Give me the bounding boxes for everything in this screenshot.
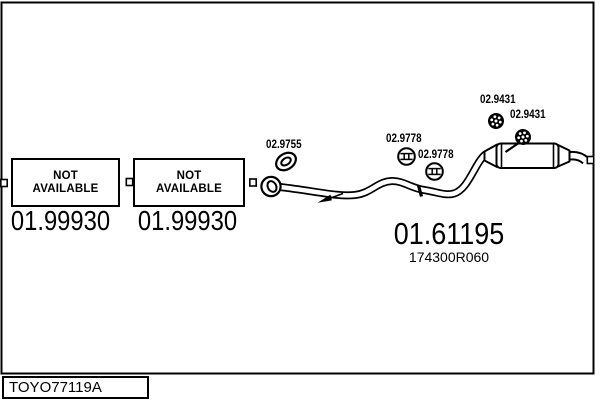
part-number-slot-2[interactable]: 01.99930	[136, 207, 239, 235]
gasket-ring-icon[interactable]	[273, 149, 299, 174]
part-number-mount-lower[interactable]: 02.9431	[510, 108, 546, 120]
part-number-slot-1[interactable]: 01.99930	[9, 207, 112, 235]
exhaust-parts-diagram: NOT AVAILABLE 01.99930 NOT AVAILABLE 01.…	[0, 0, 600, 400]
rubber-mount-icon-upper[interactable]	[486, 111, 506, 131]
part-number-gasket[interactable]: 02.9755	[266, 138, 302, 150]
pipe-clamp-icon-rear[interactable]	[426, 163, 443, 180]
drawing-code-box: TOYO77119A	[2, 376, 149, 399]
connector-square-icon-4	[587, 157, 593, 164]
not-available-label: NOT AVAILABLE	[153, 170, 225, 196]
part-number-silencer[interactable]: 01.61195	[379, 218, 520, 249]
not-available-box-1[interactable]: NOT AVAILABLE	[11, 158, 120, 207]
part-number-mount-upper[interactable]: 02.9431	[480, 93, 516, 105]
inlet-flange-icon	[261, 177, 280, 196]
part-number-clamp-front[interactable]: 02.9778	[386, 132, 422, 144]
connector-square-icon-3	[250, 179, 256, 186]
drawing-code-label: TOYO77119A	[9, 379, 102, 396]
silencer-callout: 01.61195 174300R060	[368, 218, 530, 265]
not-available-label: NOT AVAILABLE	[30, 170, 102, 196]
rear-silencer-shape[interactable]	[485, 144, 570, 169]
connector-square-icon-2	[126, 179, 132, 186]
part-number-clamp-rear[interactable]: 02.9778	[418, 148, 454, 160]
oem-reference: 174300R060	[368, 250, 530, 265]
pipe-clamp-icon-front[interactable]	[398, 148, 415, 165]
front-pipe[interactable]	[280, 154, 486, 195]
not-available-box-2[interactable]: NOT AVAILABLE	[133, 158, 245, 207]
connector-square-icon-1	[1, 180, 7, 187]
